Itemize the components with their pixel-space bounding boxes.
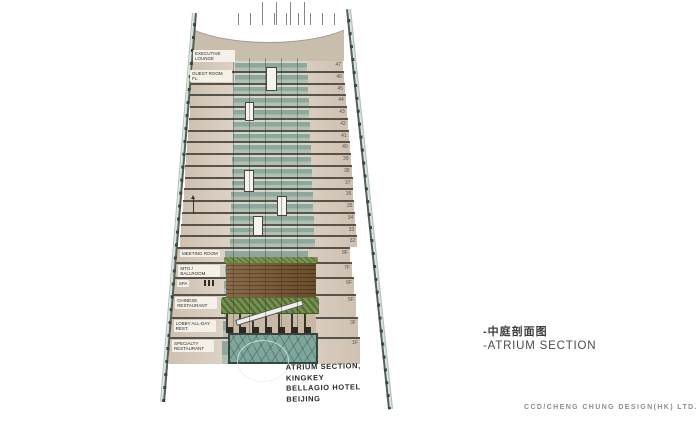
guestroom-left (181, 226, 230, 236)
program-label: MTG / BALLROOM (178, 265, 220, 277)
guestroom-left (190, 108, 234, 118)
caption-english: -ATRIUM SECTION (483, 340, 596, 352)
floor-number: 34 (348, 215, 354, 221)
floor-number: 33 (349, 227, 355, 233)
floor-number: 8F (342, 250, 348, 256)
floor-number: 5F (348, 297, 354, 303)
program-label: EXECUTIVE LOUNGE (193, 50, 235, 62)
floor-number: 42 (340, 121, 346, 127)
floor-number: 35 (347, 203, 353, 209)
caption-chinese: -中庭剖面图 (483, 323, 596, 339)
program-label: GUEST ROOM FL. (190, 70, 232, 82)
atrium-cable-lines (233, 58, 313, 334)
floor-number: 7F (344, 265, 350, 271)
program-label: CHINESE RESTAURANT (175, 297, 217, 309)
floor-number: 43 (339, 109, 345, 115)
floor-number: 6F (346, 280, 352, 286)
program-label: SPA (177, 280, 190, 287)
floor-number: 1F (352, 340, 358, 346)
floor-number: 45 (337, 86, 343, 92)
floor-number: 38 (344, 168, 350, 174)
guestroom-left (188, 132, 233, 142)
floor-number: 36 (346, 191, 352, 197)
people-figures (204, 280, 214, 286)
roof-concave-cut (194, 25, 344, 43)
presentation-board: 47464544434241403938373635343332 8FMEETI… (0, 0, 700, 438)
note-line: ATRIUM SECTION, (286, 361, 361, 373)
guestroom-left (185, 179, 232, 189)
guestroom-left (186, 155, 232, 165)
floor-number: 32 (350, 238, 356, 244)
program-label: MEETING ROOM (180, 250, 220, 257)
floor-number: 39 (343, 156, 349, 162)
floor-number: 37 (345, 180, 351, 186)
floor-number: 46 (336, 74, 342, 80)
drawing-caption: -中庭剖面图 -ATRIUM SECTION (483, 323, 596, 352)
guestroom-left (189, 120, 234, 130)
program-label: LOBBY ALL-DAY REST. (174, 320, 216, 332)
floor-number: 47 (335, 62, 341, 68)
floor-number: 44 (338, 97, 344, 103)
floor-number: 40 (342, 144, 348, 150)
guestroom-left (183, 202, 231, 212)
floor-number: 41 (341, 133, 347, 139)
floor-number: 3F (350, 320, 356, 326)
guestroom-left (187, 143, 233, 153)
elevator-travel-arrow (193, 198, 194, 214)
guestroom-left (185, 167, 232, 177)
note-line: BELLAGIO HOTEL (286, 382, 361, 394)
note-line: BEIJING (286, 393, 361, 405)
design-firm-credit: CCD/Cheng Chung Design(HK) LTD. (524, 404, 698, 411)
handwritten-note: ATRIUM SECTION,KINGKEYBELLAGIO HOTELBEIJ… (286, 361, 362, 405)
guestroom-left (180, 237, 230, 247)
guestroom-left (191, 85, 234, 95)
entry-glass-canopy (228, 333, 318, 364)
program-label: SPECIALTY RESTAURANT (172, 340, 214, 352)
guestroom-left (190, 96, 234, 106)
guestroom-left (182, 214, 231, 224)
